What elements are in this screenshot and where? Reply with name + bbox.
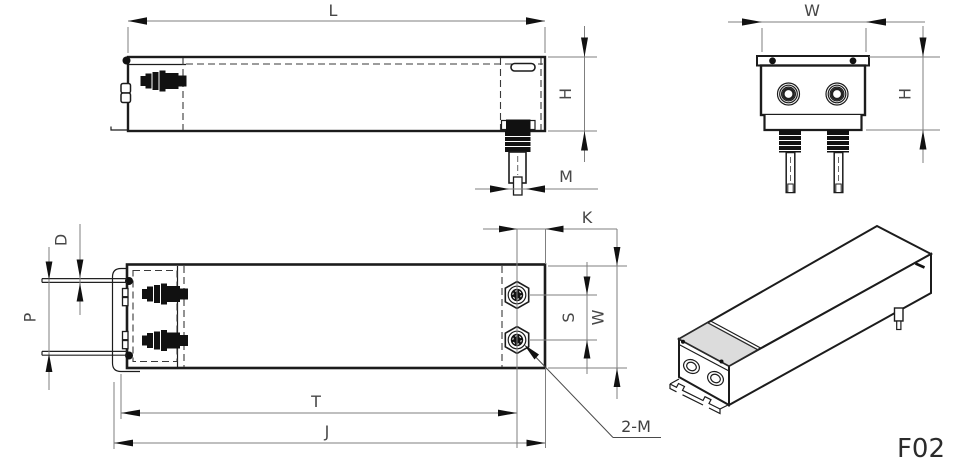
side-clip bbox=[121, 93, 131, 103]
dim-arrow-icon bbox=[581, 131, 588, 151]
dim-arrow-icon bbox=[527, 440, 546, 447]
dim-arrow-icon bbox=[526, 185, 545, 192]
height-dim-label: H bbox=[896, 88, 915, 100]
height-dim-label: H bbox=[556, 88, 575, 100]
dim-arrow-icon bbox=[490, 185, 509, 192]
dim-arrow-icon bbox=[526, 17, 545, 25]
dim-arrow-icon bbox=[128, 17, 147, 25]
mounting-stud bbox=[827, 130, 849, 193]
isometric-view: F02 bbox=[670, 226, 945, 464]
dim-arrow-icon bbox=[77, 283, 84, 302]
dim-arrow-icon bbox=[866, 18, 886, 25]
side-clip bbox=[123, 332, 129, 340]
dim-arrow-icon bbox=[742, 18, 762, 25]
outline-drawing-svg: L H M W bbox=[0, 0, 956, 465]
w-plan-dim-label: W bbox=[589, 309, 608, 325]
length-dimension-lines bbox=[128, 21, 545, 53]
base-band bbox=[765, 115, 862, 130]
dim-arrow-icon bbox=[581, 38, 588, 58]
dim-arrow-icon bbox=[920, 38, 927, 58]
side-clip bbox=[123, 289, 129, 297]
dim-arrow-icon bbox=[499, 226, 517, 233]
flange-lip bbox=[111, 127, 128, 131]
vent-slot bbox=[511, 64, 535, 72]
lid-screw bbox=[769, 57, 776, 64]
k-dim-label: K bbox=[582, 208, 593, 227]
end-view: W bbox=[728, 1, 940, 193]
model-code-label: F02 bbox=[897, 434, 945, 464]
enclosure-body-plan bbox=[127, 265, 545, 369]
lid-screw bbox=[681, 340, 685, 344]
dim-arrow-icon bbox=[920, 130, 927, 150]
dim-arrow-icon bbox=[46, 354, 53, 373]
width-dim-label: W bbox=[804, 1, 820, 20]
d-dim-label: D bbox=[52, 234, 71, 246]
lid-screw bbox=[720, 360, 724, 364]
lead-wires bbox=[42, 279, 127, 356]
iso-stud bbox=[895, 308, 904, 321]
width-dimension-lines bbox=[728, 22, 925, 52]
side-clip bbox=[123, 298, 129, 306]
dim-arrow-icon bbox=[546, 226, 564, 233]
dim-arrow-icon bbox=[114, 440, 133, 447]
dim-arrow-icon bbox=[46, 262, 53, 281]
t-dim-label: T bbox=[310, 392, 321, 411]
p-dim-label: P bbox=[21, 312, 40, 322]
dim-arrow-icon bbox=[584, 340, 591, 359]
dim-arrow-icon bbox=[614, 247, 621, 266]
side-clip bbox=[123, 341, 129, 349]
mounting-stud bbox=[779, 130, 801, 193]
dim-arrow-icon bbox=[584, 277, 591, 296]
dim-arrow-icon bbox=[614, 368, 621, 387]
plan-view: K S W D P T J 2-M bbox=[21, 208, 662, 449]
corner-screw bbox=[123, 57, 131, 65]
dim-arrow-icon bbox=[77, 260, 84, 279]
dim-arrow-icon bbox=[121, 410, 140, 417]
side-clip bbox=[121, 84, 131, 94]
stud-tip bbox=[514, 177, 523, 195]
enclosure-body-end bbox=[761, 66, 865, 116]
s-dim-label: S bbox=[559, 312, 578, 322]
length-dim-label: L bbox=[329, 1, 338, 20]
lid-screw bbox=[850, 57, 857, 64]
side-view: L H M bbox=[111, 1, 598, 195]
enclosure-body-side bbox=[128, 57, 545, 131]
dim-arrow-icon bbox=[498, 410, 517, 417]
stud-callout-label: 2-M bbox=[621, 417, 651, 436]
stud-dim-label: M bbox=[559, 167, 573, 186]
stud-nut bbox=[506, 120, 531, 132]
technical-drawing-page: L H M W bbox=[0, 0, 956, 465]
j-dim-label: J bbox=[324, 422, 330, 441]
iso-stud-tip bbox=[897, 321, 901, 330]
